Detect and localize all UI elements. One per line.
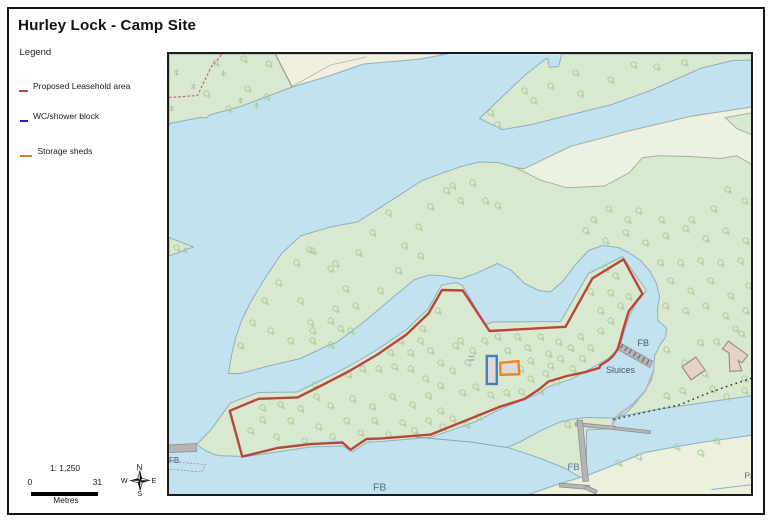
svg-text:Sluices: Sluices bbox=[606, 365, 636, 375]
svg-text:W: W bbox=[121, 478, 128, 485]
svg-text:FB: FB bbox=[373, 481, 386, 493]
svg-text:S: S bbox=[138, 491, 143, 498]
svg-text:Pa: Pa bbox=[744, 470, 751, 480]
svg-text:FB: FB bbox=[637, 338, 649, 348]
svg-text:FB: FB bbox=[567, 461, 579, 472]
svg-text:N: N bbox=[137, 463, 143, 472]
svg-text:f FB: f FB bbox=[169, 456, 179, 465]
svg-text:E: E bbox=[152, 478, 157, 485]
